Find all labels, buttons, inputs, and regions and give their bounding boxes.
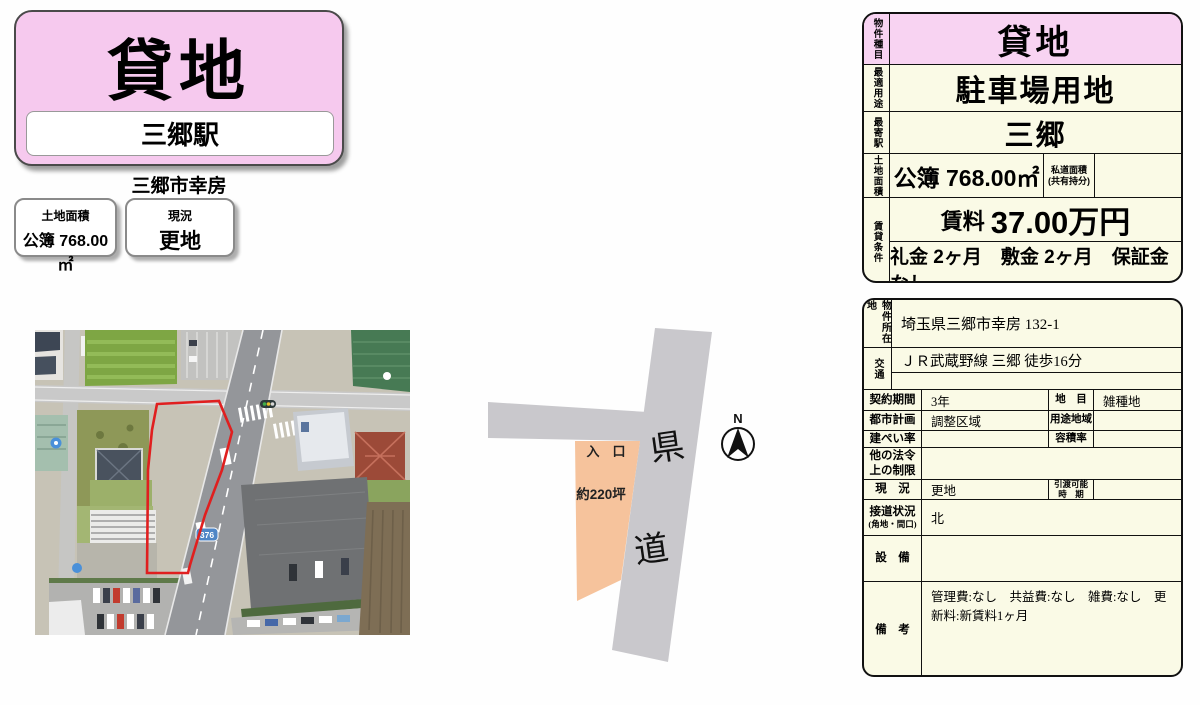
- row-coverage: 建ぺい率 容積率: [864, 431, 1181, 448]
- floor-ratio-value: [1094, 431, 1181, 447]
- handover-label-2: 時 期: [1058, 490, 1084, 500]
- row-label: 備 考: [864, 582, 922, 677]
- private-road-label: 私道面積 (共有持分): [1044, 154, 1095, 197]
- north-arrow: N: [722, 411, 754, 460]
- land-area-box: 土地面積 公簿 768.00㎡: [14, 198, 117, 257]
- contract-value: 3年: [922, 390, 1049, 410]
- flyer-page: 貸地 三郷駅 三郷市幸房 土地面積 公簿 768.00㎡ 現況 更地: [0, 0, 1200, 705]
- row-label: 最寄駅: [864, 112, 890, 153]
- aerial-photo: 376: [35, 330, 410, 635]
- row-label: 土地面積: [864, 154, 890, 197]
- land-category-label: 地 目: [1049, 390, 1094, 410]
- property-type-title: 貸地: [16, 18, 342, 114]
- current-status-box: 現況 更地: [125, 198, 235, 257]
- summary-table: 物件種目 貸地 最適用途 駐車場用地 最寄駅 三郷 土地面積 公簿 768.00…: [862, 12, 1183, 283]
- route-number: 376: [200, 530, 214, 540]
- access-value: ＪＲ武蔵野線 三郷 徒歩16分: [892, 348, 1181, 373]
- row-label: 設 備: [864, 536, 922, 581]
- row-equipment: 設 備: [864, 536, 1181, 582]
- private-road-label-1: 私道面積: [1051, 165, 1087, 176]
- city-plan-value: 調整区域: [922, 411, 1049, 430]
- row-nearest-station: 最寄駅 三郷: [864, 112, 1181, 154]
- frontage-label: 接道状況: [870, 505, 916, 519]
- row-label: 接道状況 (角地・間口): [864, 500, 922, 535]
- private-road-value: [1095, 154, 1181, 197]
- row-land-area: 土地面積 公簿 768.00㎡ 私道面積 (共有持分): [864, 154, 1181, 198]
- coverage-value: [922, 431, 1049, 447]
- remarks-value: 管理費:なし 共益費:なし 雑費:なし 更新料:新賃料1ヶ月: [922, 582, 1181, 677]
- station-name: 三郷駅: [141, 115, 219, 152]
- rent-prefix: 賃料: [941, 204, 985, 236]
- other-laws-label-2: 上の制限: [870, 464, 916, 478]
- row-label: 物件所在地: [864, 300, 892, 347]
- nearest-station-value: 三郷: [890, 112, 1181, 153]
- north-label: N: [733, 411, 742, 426]
- row-label: 他の法令 上の制限: [864, 448, 922, 479]
- frontage-label-sub: (角地・間口): [868, 519, 916, 530]
- land-area-value: 公簿 768.00㎡: [16, 227, 115, 275]
- other-laws-label-1: 他の法令: [870, 449, 916, 463]
- lot-area-label: 約220坪: [576, 486, 626, 502]
- handover-value: [1094, 480, 1181, 499]
- zoning-value: [1094, 411, 1181, 430]
- private-road-label-2: (共有持分): [1048, 176, 1090, 187]
- row-frontage: 接道状況 (角地・間口) 北: [864, 500, 1181, 536]
- other-laws-value: [922, 448, 1181, 479]
- area-name: 三郷市幸房: [14, 171, 344, 198]
- row-label: 賃貸条件: [864, 198, 890, 283]
- station-box: 三郷駅: [26, 111, 334, 156]
- row-remarks: 備 考 管理費:なし 共益費:なし 雑費:なし 更新料:新賃料1ヶ月: [864, 582, 1181, 677]
- floor-ratio-label: 容積率: [1049, 431, 1094, 447]
- rent-value: 37.00万円: [991, 197, 1131, 242]
- parking-lot-right: [241, 477, 375, 609]
- lease-terms: 礼金 2ヶ月 敷金 2ヶ月 保証金 なし: [890, 242, 1181, 283]
- status-value: 更地: [922, 480, 1049, 499]
- row-label: 契約期間: [864, 390, 922, 410]
- row-label: 最適用途: [864, 65, 890, 111]
- traffic-light-icon: [260, 400, 276, 408]
- rent-line: 賃料 37.00万円: [890, 198, 1181, 242]
- row-status: 現 況 更地 引渡可能 時 期: [864, 480, 1181, 500]
- handover-label: 引渡可能 時 期: [1049, 480, 1094, 499]
- access-value-2: [892, 373, 1181, 389]
- row-other-laws: 他の法令 上の制限: [864, 448, 1181, 480]
- best-use-value: 駐車場用地: [890, 65, 1181, 111]
- row-lease-terms: 賃貸条件 賃料 37.00万円 礼金 2ヶ月 敷金 2ヶ月 保証金 なし: [864, 198, 1181, 283]
- row-label: 建ぺい率: [864, 431, 922, 447]
- row-property-type: 物件種目 貸地: [864, 14, 1181, 65]
- land-category-value: 雑種地: [1094, 390, 1181, 410]
- row-label: 交通: [864, 348, 892, 389]
- road-label-ken: 県: [648, 427, 687, 469]
- row-city-plan: 都市計画 調整区域 用途地域: [864, 411, 1181, 431]
- current-status-value: 更地: [127, 225, 233, 255]
- land-area-title: 土地面積: [16, 207, 115, 224]
- address-value: 埼玉県三郷市幸房 132-1: [892, 300, 1181, 347]
- frontage-value: 北: [922, 500, 1181, 535]
- entrance-label: 入 口: [586, 444, 625, 459]
- property-type-value: 貸地: [890, 14, 1181, 64]
- details-table: 物件所在地 埼玉県三郷市幸房 132-1 交通 ＪＲ武蔵野線 三郷 徒歩16分 …: [862, 298, 1183, 677]
- row-access: 交通 ＪＲ武蔵野線 三郷 徒歩16分: [864, 348, 1181, 390]
- green-roof-building: [351, 330, 410, 392]
- current-status-title: 現況: [127, 207, 233, 224]
- road-label-dou: 道: [632, 529, 671, 571]
- row-contract: 契約期間 3年 地 目 雑種地: [864, 390, 1181, 411]
- branch-road: [488, 402, 648, 441]
- site-diagram: 入 口 約220坪 県 道 N: [480, 320, 800, 710]
- row-best-use: 最適用途 駐車場用地: [864, 65, 1181, 112]
- equipment-value: [922, 536, 1181, 581]
- row-label: 現 況: [864, 480, 922, 499]
- row-address: 物件所在地 埼玉県三郷市幸房 132-1: [864, 300, 1181, 348]
- land-area-value: 公簿 768.00㎡: [890, 154, 1044, 197]
- property-type-banner: 貸地 三郷駅: [14, 10, 344, 166]
- row-label: 都市計画: [864, 411, 922, 430]
- zoning-label: 用途地域: [1049, 411, 1094, 430]
- row-label: 物件種目: [864, 14, 890, 64]
